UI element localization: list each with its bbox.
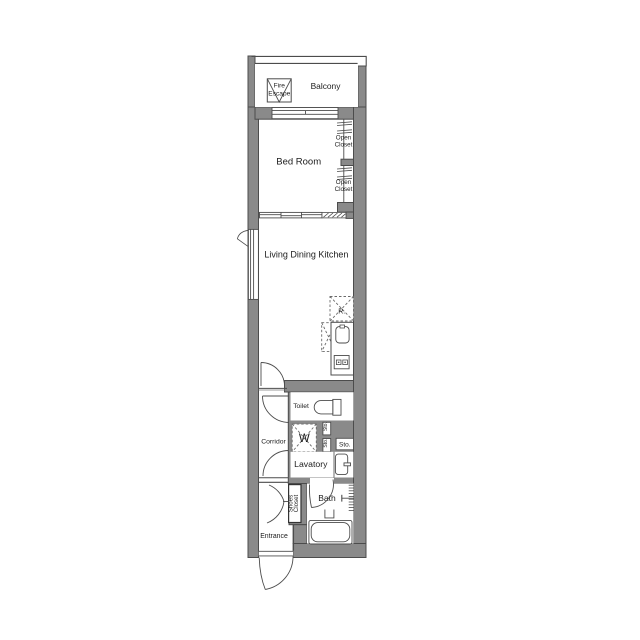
svg-text:Sto.: Sto. (323, 422, 329, 431)
svg-text:Entrance: Entrance (260, 533, 288, 540)
svg-text:Bed Room: Bed Room (276, 157, 321, 168)
svg-text:R.: R. (338, 309, 345, 316)
svg-text:Closet: Closet (293, 494, 300, 512)
svg-text:W: W (299, 433, 310, 445)
svg-text:Open: Open (336, 135, 352, 142)
svg-text:Corridor: Corridor (261, 439, 286, 446)
svg-text:Sto.: Sto. (339, 442, 351, 449)
svg-text:Lavatory: Lavatory (294, 459, 328, 469)
svg-text:Bath: Bath (318, 493, 336, 503)
svg-text:Escape: Escape (268, 91, 290, 98)
svg-text:Closet: Closet (335, 142, 353, 149)
svg-text:Balcony: Balcony (311, 81, 342, 91)
svg-text:Toilet: Toilet (293, 403, 309, 410)
svg-text:Closet: Closet (335, 186, 353, 193)
svg-text:Open: Open (336, 179, 352, 186)
svg-text:Sto.: Sto. (323, 439, 329, 448)
svg-text:Living Dining Kitchen: Living Dining Kitchen (264, 250, 348, 260)
svg-text:Fire: Fire (274, 83, 286, 90)
